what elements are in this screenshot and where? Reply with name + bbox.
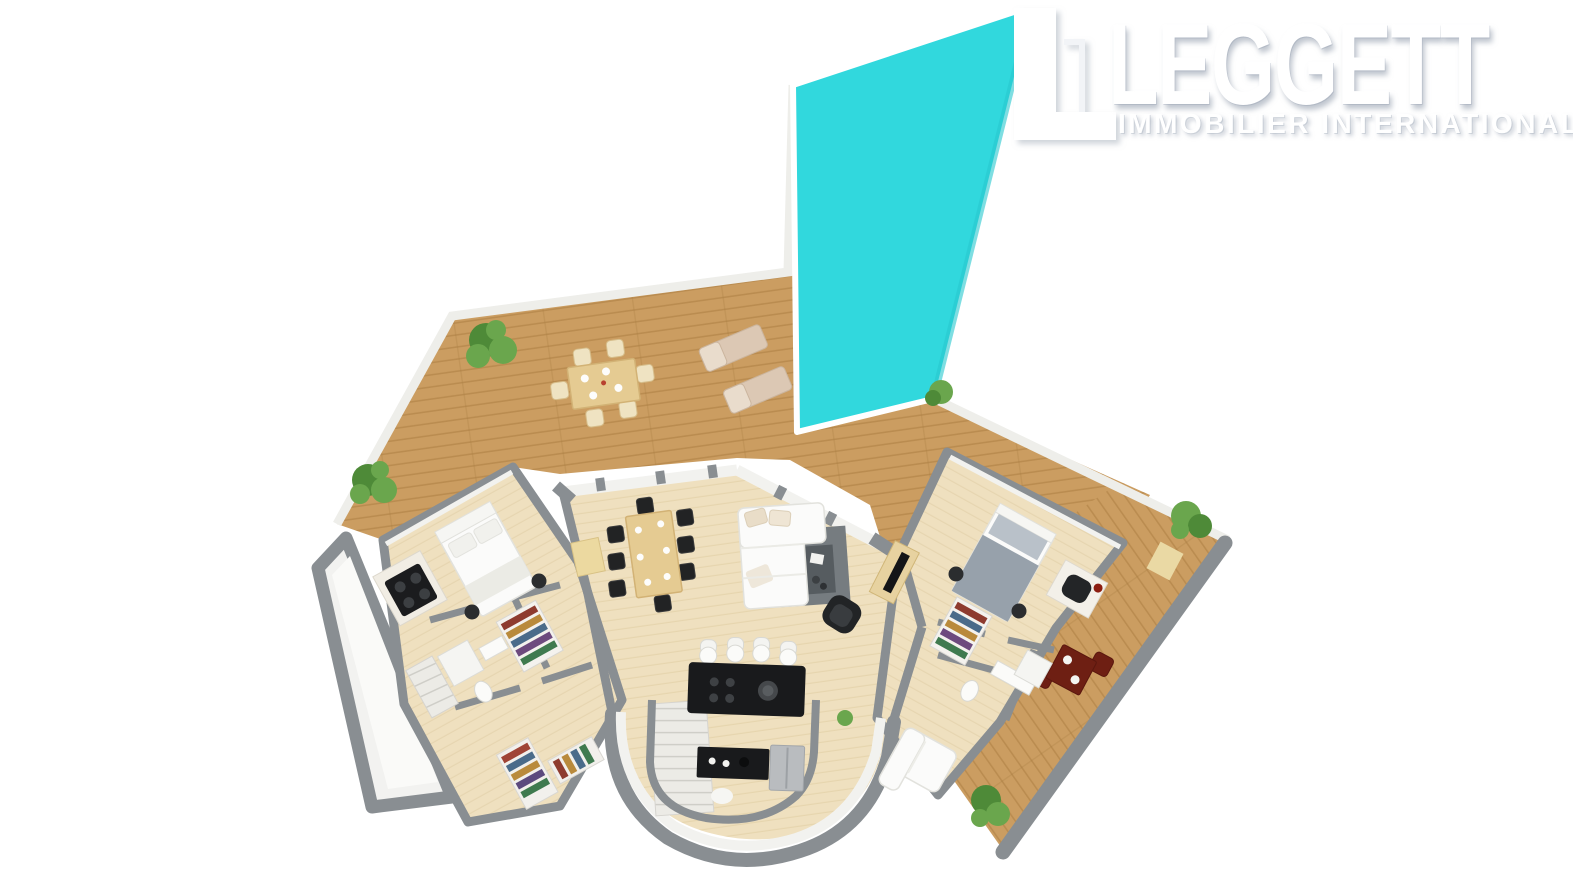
small-indoor-plant [837, 710, 853, 726]
sofa-pillow [769, 510, 791, 527]
kitchen-island [687, 662, 806, 717]
stair-landing [711, 788, 733, 804]
floor-plan-render: LEGGETT IMMOBILIER INTERNATIONAL [0, 0, 1573, 885]
swimming-pool [793, 5, 1035, 432]
bedside-lamp [949, 567, 964, 582]
pool-water [793, 5, 1035, 432]
bedside-lamp [1012, 604, 1027, 619]
bedside-lamp [532, 574, 547, 589]
kitchen-counter [697, 747, 770, 780]
plant-side-terrace [1171, 501, 1212, 539]
bedside-lamp [465, 605, 480, 620]
floor-plan-canvas [0, 0, 1573, 885]
